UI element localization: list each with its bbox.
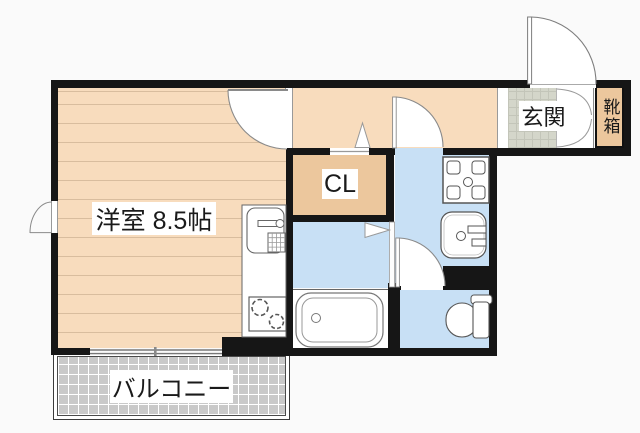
closet-label: CL: [322, 169, 358, 199]
toilet-icon: [446, 295, 492, 338]
shoe-box-label: 靴箱: [597, 90, 623, 144]
front-door-swing-icon: [528, 17, 596, 85]
entrance-label: 玄関: [519, 101, 568, 131]
balcony-label: バルコニー: [110, 370, 233, 403]
washroom-door-swing-icon: [393, 97, 443, 148]
kitchen-sink-icon: [247, 208, 285, 253]
gas-stove-icon: [249, 297, 286, 331]
washing-machine-pan-icon: [443, 157, 489, 203]
washbasin-icon: [441, 212, 486, 258]
left-door-swing-icon: [30, 202, 52, 233]
floor-plan: 洋室 8.5帖 CL 玄関 靴箱 バルコニー: [0, 0, 640, 433]
balcony-window-icon: [90, 347, 222, 356]
door-swing-marker-icon: [365, 223, 390, 238]
main-room-label: 洋室 8.5帖: [92, 202, 216, 235]
toilet-door-swing-icon: [396, 238, 445, 287]
bathtub-icon: [296, 293, 383, 347]
washroom-partition-icon: [389, 222, 394, 287]
closet-door-icon: [330, 123, 370, 152]
room-door-swing-icon: [228, 90, 288, 149]
